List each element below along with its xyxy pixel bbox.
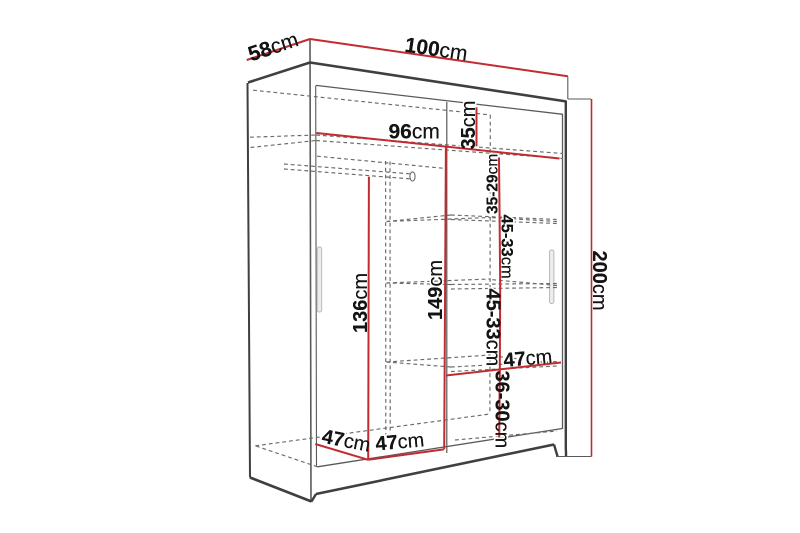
svg-text:35-29cm: 35-29cm — [484, 154, 501, 214]
svg-text:45-33cm: 45-33cm — [498, 215, 516, 279]
svg-text:45-33cm: 45-33cm — [482, 289, 504, 367]
svg-text:200cm: 200cm — [588, 251, 610, 311]
svg-text:35cm: 35cm — [458, 101, 480, 150]
svg-text:149cm: 149cm — [425, 260, 447, 320]
svg-text:136cm: 136cm — [350, 273, 372, 333]
svg-text:36-30cm: 36-30cm — [491, 371, 513, 449]
svg-text:96cm: 96cm — [389, 121, 440, 144]
svg-text:47cm: 47cm — [375, 429, 426, 455]
svg-text:47cm: 47cm — [503, 346, 554, 372]
